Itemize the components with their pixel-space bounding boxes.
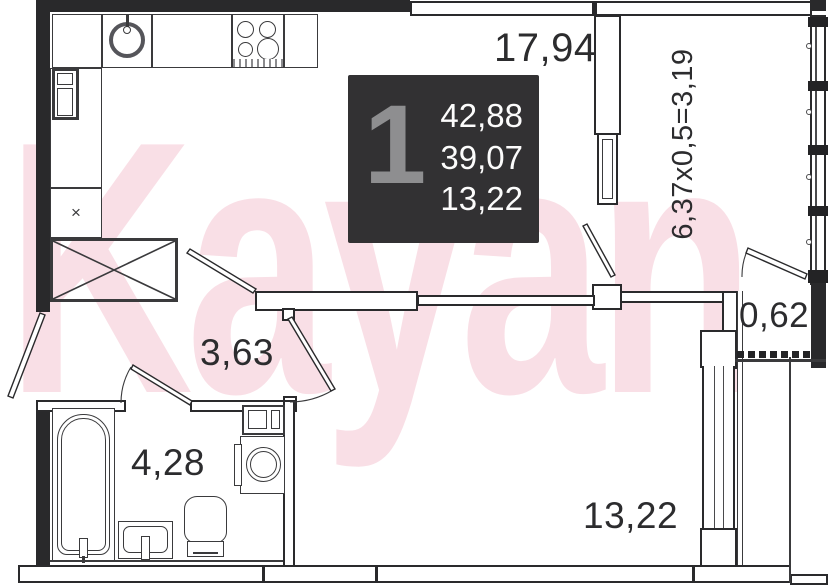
- wardrobe-x-mark: [53, 241, 175, 299]
- unit-areas: 42,88 39,07 13,22: [440, 95, 523, 220]
- room-label-room: 13,22: [583, 495, 678, 537]
- bathroom-door-leaf: [131, 365, 192, 405]
- area-living: 39,07: [440, 137, 523, 179]
- room-label-kitchen-living: 17,94: [494, 26, 597, 71]
- room-label-balcony-calc: 6,37x0,5=3,19: [667, 31, 699, 257]
- kitchen-door-leaf: [187, 249, 256, 293]
- unit-number: 1: [364, 89, 426, 201]
- floor-plan: Kayan: [0, 0, 828, 585]
- balcony-door-leaf: [583, 224, 615, 277]
- room-label-bathroom: 4,28: [131, 442, 205, 484]
- door-arc: [290, 390, 333, 402]
- door-arc: [121, 367, 131, 403]
- door-arc: [742, 251, 747, 277]
- unit-info-box: 1 42,88 39,07 13,22: [348, 75, 539, 243]
- area-room: 13,22: [440, 178, 523, 220]
- hallway-room-door-leaf: [288, 317, 335, 391]
- pocket-door-leaf: [746, 248, 807, 279]
- entrance-door-leaf: [8, 313, 45, 398]
- area-total: 42,88: [440, 95, 523, 137]
- room-label-pocket: 0,62: [739, 296, 809, 336]
- room-label-hallway: 3,63: [200, 332, 274, 374]
